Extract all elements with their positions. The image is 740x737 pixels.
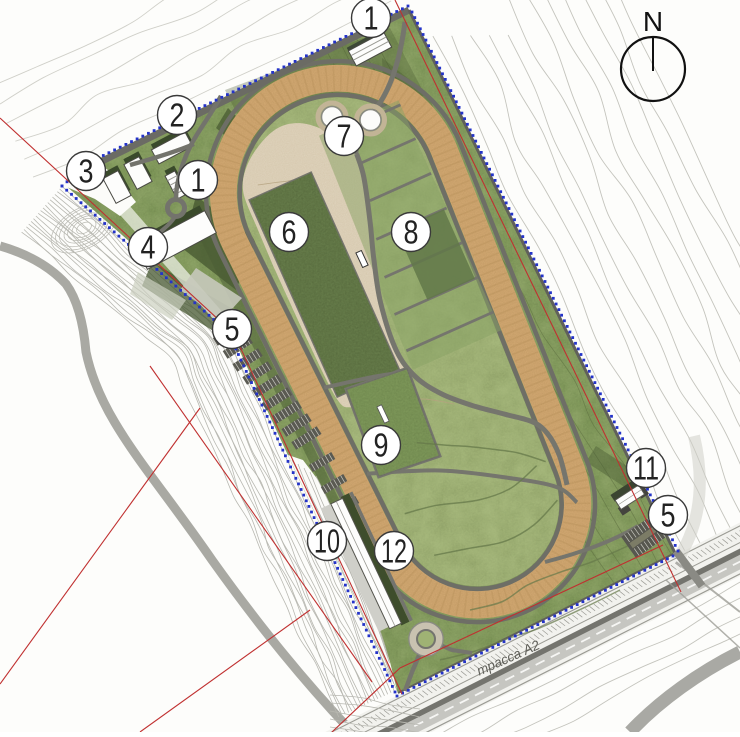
svg-text:7: 7 [337,118,352,155]
svg-text:N: N [643,6,663,37]
svg-text:1: 1 [364,0,379,37]
svg-text:2: 2 [170,97,185,134]
svg-text:8: 8 [404,214,419,251]
svg-text:6: 6 [282,214,297,251]
svg-text:5: 5 [225,311,240,348]
svg-text:10: 10 [314,523,340,560]
svg-text:3: 3 [79,153,94,190]
svg-text:11: 11 [633,450,659,487]
svg-text:4: 4 [141,229,156,266]
svg-text:12: 12 [381,533,407,570]
svg-text:1: 1 [191,162,206,199]
svg-text:9: 9 [374,427,389,464]
svg-text:5: 5 [661,497,676,534]
